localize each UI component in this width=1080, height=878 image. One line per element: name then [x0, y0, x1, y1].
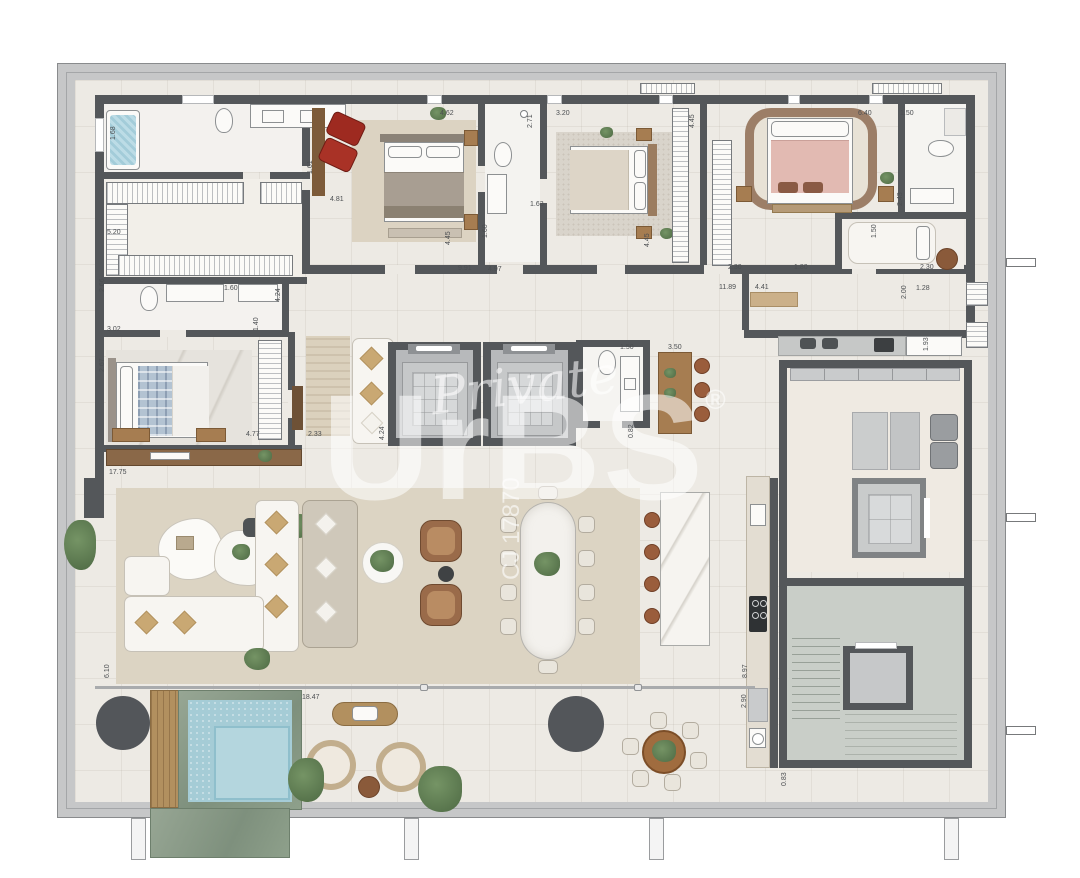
dimension-label: 8.97 — [742, 664, 749, 678]
dimension-label: 4.24 — [379, 426, 386, 440]
dimension-label: 4.97 — [488, 266, 502, 273]
dimension-label: 1.61 — [307, 160, 314, 174]
dimension-label: 1.28 — [916, 285, 930, 292]
dimension-label: 1.63 — [530, 201, 544, 208]
dimension-label: 5.20 — [107, 229, 121, 236]
dimension-label: 1.93 — [923, 337, 930, 351]
dimension-label: 2.67 — [99, 358, 106, 372]
dimension-label: 2.66 — [99, 278, 106, 292]
dimension-label: 4.77 — [246, 431, 260, 438]
dimension-label: 3.02 — [107, 326, 121, 333]
dimension-label: 3.20 — [556, 110, 570, 117]
dimension-label: 2.43 — [897, 192, 904, 206]
dimension-label: 2.30 — [728, 264, 742, 271]
dimension-label: 4.45 — [689, 114, 696, 128]
dimension-label: 2.00 — [901, 285, 908, 299]
dimension-label: 9.91 — [458, 265, 472, 272]
dimension-label: 0.83 — [781, 772, 788, 786]
dimension-label: 4.45 — [644, 233, 651, 247]
dimension-layer: 1.684.815.202.664.621.614.459.914.972.71… — [0, 0, 1080, 878]
dimension-label: 4.45 — [445, 231, 452, 245]
dimension-label: 0.82 — [628, 424, 635, 438]
dimension-label: 2.71 — [527, 114, 534, 128]
dimension-label: 1.50 — [871, 224, 878, 238]
dimension-label: 1.50 — [900, 110, 914, 117]
dimension-label: 6.40 — [858, 110, 872, 117]
floor-plan: Private UrBS® CJ 17870 1.684.815.202.664… — [0, 0, 1080, 878]
dimension-label: 17.75 — [109, 469, 127, 476]
dimension-label: 4.81 — [330, 196, 344, 203]
dimension-label: 18.47 — [302, 694, 320, 701]
dimension-label: 2.33 — [308, 431, 322, 438]
dimension-label: 1.80 — [794, 264, 808, 271]
dimension-label: 1.60 — [224, 285, 238, 292]
dimension-label: 3.50 — [668, 344, 682, 351]
dimension-label: 1.50 — [620, 344, 634, 351]
dimension-label: 6.10 — [104, 664, 111, 678]
dimension-label: 4.41 — [755, 284, 769, 291]
dimension-label: 1.68 — [110, 126, 117, 140]
dimension-label: 11.89 — [719, 284, 736, 291]
dimension-label: 2.30 — [920, 264, 934, 271]
dimension-label: 4.24 — [275, 288, 282, 302]
dimension-label: 4.62 — [440, 110, 454, 117]
dimension-label: 1.40 — [253, 317, 260, 331]
dimension-label: 1.60 — [482, 224, 489, 238]
dimension-label: 2.90 — [741, 694, 748, 708]
